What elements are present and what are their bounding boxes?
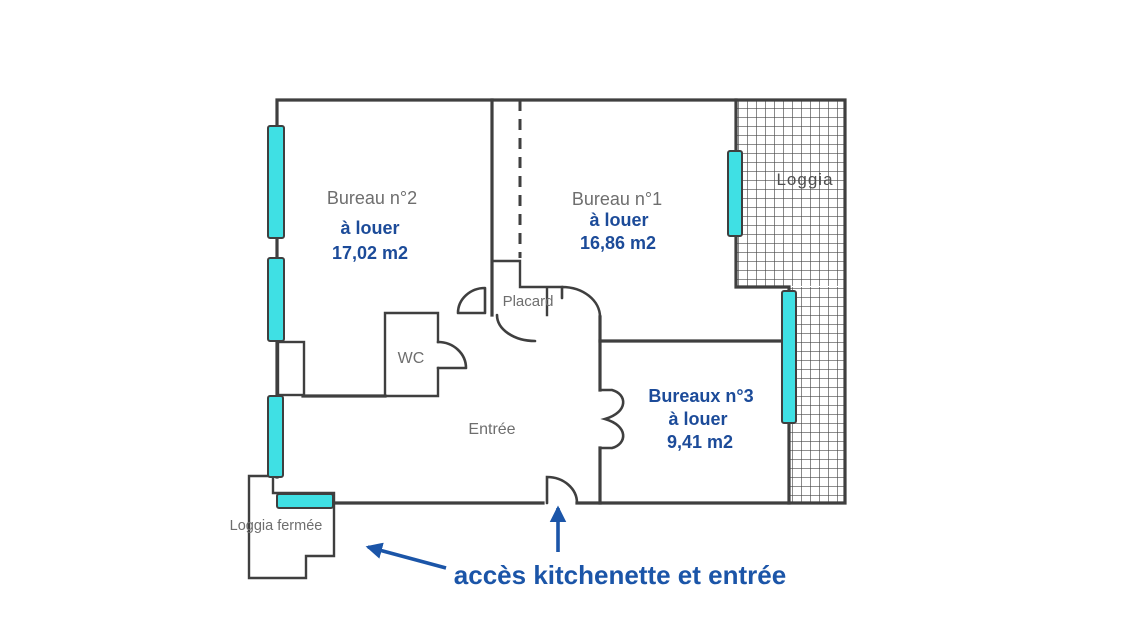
loggia-hatch-area [737,101,844,286]
loggia-fermee-label: Loggia fermée [230,518,323,534]
bureau2-area: 17,02 m2 [332,243,408,263]
corridor-door [458,288,485,313]
annotation: accès kitchenette et entrée [368,508,786,590]
window-bureau1-loggia [728,151,742,236]
entry-door [547,477,577,503]
window-kitchenette [268,396,283,477]
annotation-label: accès kitchenette et entrée [454,560,786,590]
floor-plan-canvas: Bureau n°2 à louer 17,02 m2 Bureau n°1 à… [0,0,1130,636]
wc-door [438,342,466,368]
bureau1-area: 16,86 m2 [580,233,656,253]
chimney-hatch-block [278,342,304,395]
placard-label: Placard [503,293,554,310]
window-bureau2-lower [268,258,284,341]
bureau1-name: Bureau n°1 [572,189,662,209]
window-loggia-fermee [277,494,333,508]
bureau2-status: à louer [340,218,399,238]
bureau1-door [562,287,600,317]
door-arcs [438,287,623,503]
window-bureau2-upper [268,126,284,238]
bureau1-status: à louer [589,210,648,230]
placard-door [497,315,535,341]
window-bureau3-loggia [782,291,796,423]
entree-label: Entrée [468,421,515,438]
room-labels: Bureau n°2 à louer 17,02 m2 Bureau n°1 à… [327,188,754,452]
arrow-to-loggia-fermee [368,547,446,568]
loggia-label: Loggia [776,170,833,189]
bureau3-status: à louer [668,409,727,429]
loggia-side-strip-hatch [789,287,844,502]
floor-plan-page: Bureau n°2 à louer 17,02 m2 Bureau n°1 à… [0,0,1130,636]
wc-label: WC [398,350,425,367]
bureau3-name: Bureaux n°3 [648,386,753,406]
double-swing-door [600,390,623,448]
bureau3-area: 9,41 m2 [667,432,733,452]
bureau2-name: Bureau n°2 [327,188,417,208]
